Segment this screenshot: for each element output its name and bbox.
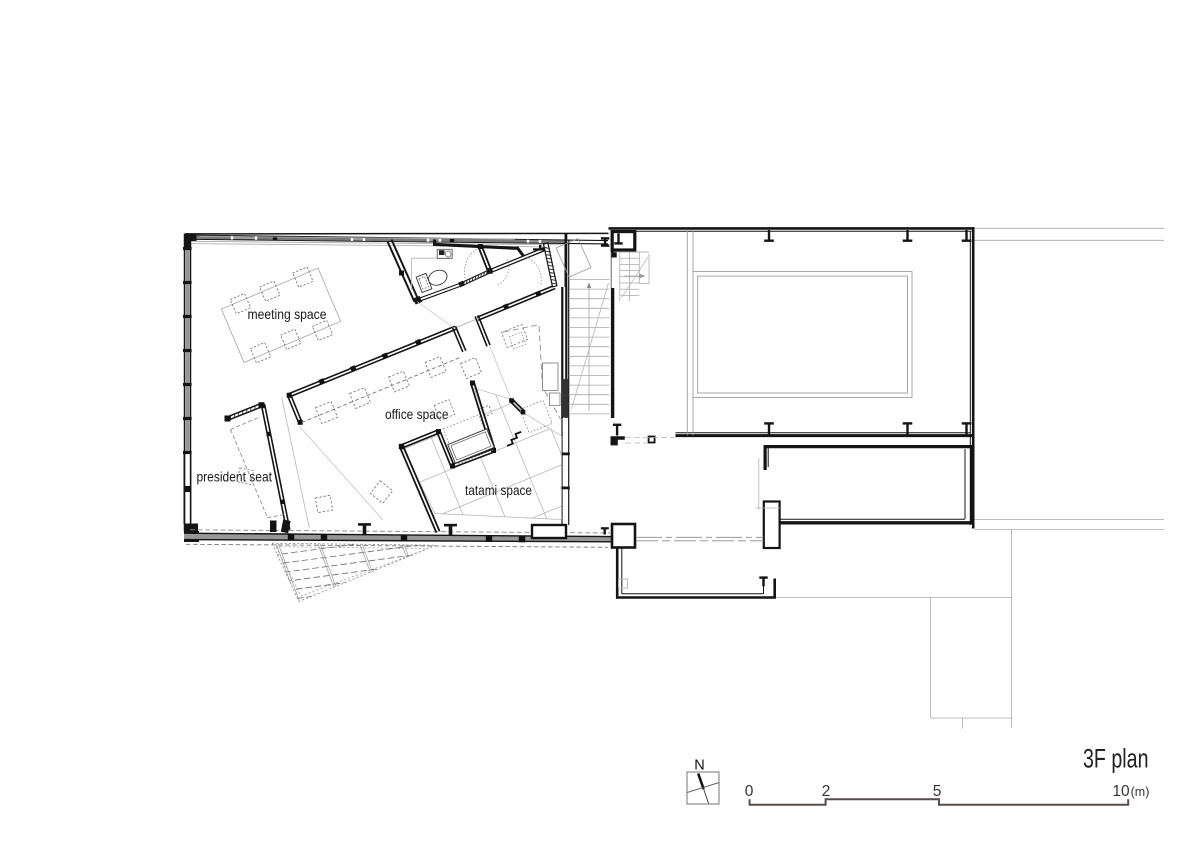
svg-text:3F plan: 3F plan: [1083, 744, 1149, 774]
svg-text:5: 5: [933, 783, 942, 800]
svg-text:office space: office space: [385, 407, 449, 422]
svg-text:president seat: president seat: [197, 470, 273, 485]
svg-text:10: 10: [1112, 783, 1130, 800]
svg-text:(m): (m): [1131, 785, 1150, 799]
svg-text:2: 2: [822, 783, 831, 800]
svg-text:tatami space: tatami space: [465, 483, 532, 498]
svg-text:N: N: [694, 758, 704, 774]
svg-text:0: 0: [745, 783, 754, 800]
svg-text:meeting space: meeting space: [248, 307, 327, 322]
